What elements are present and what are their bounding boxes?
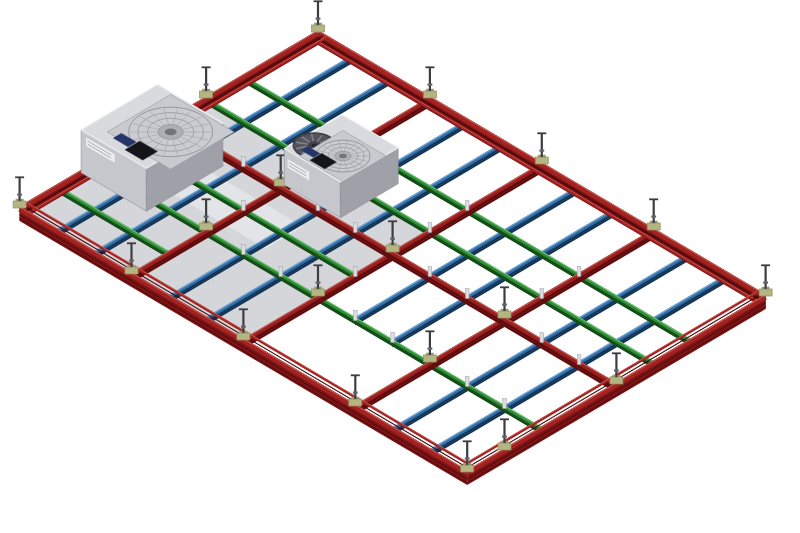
hanger-bracket xyxy=(535,132,548,164)
connector-clip xyxy=(354,223,358,233)
hanger-bracket xyxy=(423,330,436,362)
hanger-bracket xyxy=(759,264,772,296)
hanger-bracket xyxy=(498,418,511,450)
connector-clip xyxy=(577,355,581,365)
connector-clip xyxy=(465,289,469,299)
connector-clip xyxy=(354,311,358,321)
hanger-bracket xyxy=(312,0,325,32)
hanger-bracket xyxy=(610,352,623,384)
hanger-bracket xyxy=(461,440,474,472)
connector-clip xyxy=(428,223,432,233)
hanger-bracket xyxy=(349,374,362,406)
hanger-bracket xyxy=(647,198,660,230)
hanger-bracket xyxy=(13,176,26,208)
connector-clip xyxy=(465,201,469,211)
connector-clip xyxy=(428,267,432,277)
connector-clip xyxy=(540,289,544,299)
connector-clip xyxy=(503,399,507,409)
connector-clip xyxy=(540,333,544,343)
hanger-bracket xyxy=(200,66,213,98)
connector-clip xyxy=(391,333,395,343)
connector-clip xyxy=(242,201,246,211)
connector-clip xyxy=(465,377,469,387)
cad-viewport[interactable] xyxy=(0,0,800,533)
connector-clip xyxy=(577,267,581,277)
hanger-bracket xyxy=(498,286,511,318)
ceiling-grid-isometric-render xyxy=(0,0,800,533)
connector-clip xyxy=(354,267,358,277)
connector-clip xyxy=(242,245,246,255)
connector-clip xyxy=(279,267,283,277)
hanger-bracket xyxy=(423,66,436,98)
connector-clip xyxy=(242,157,246,167)
